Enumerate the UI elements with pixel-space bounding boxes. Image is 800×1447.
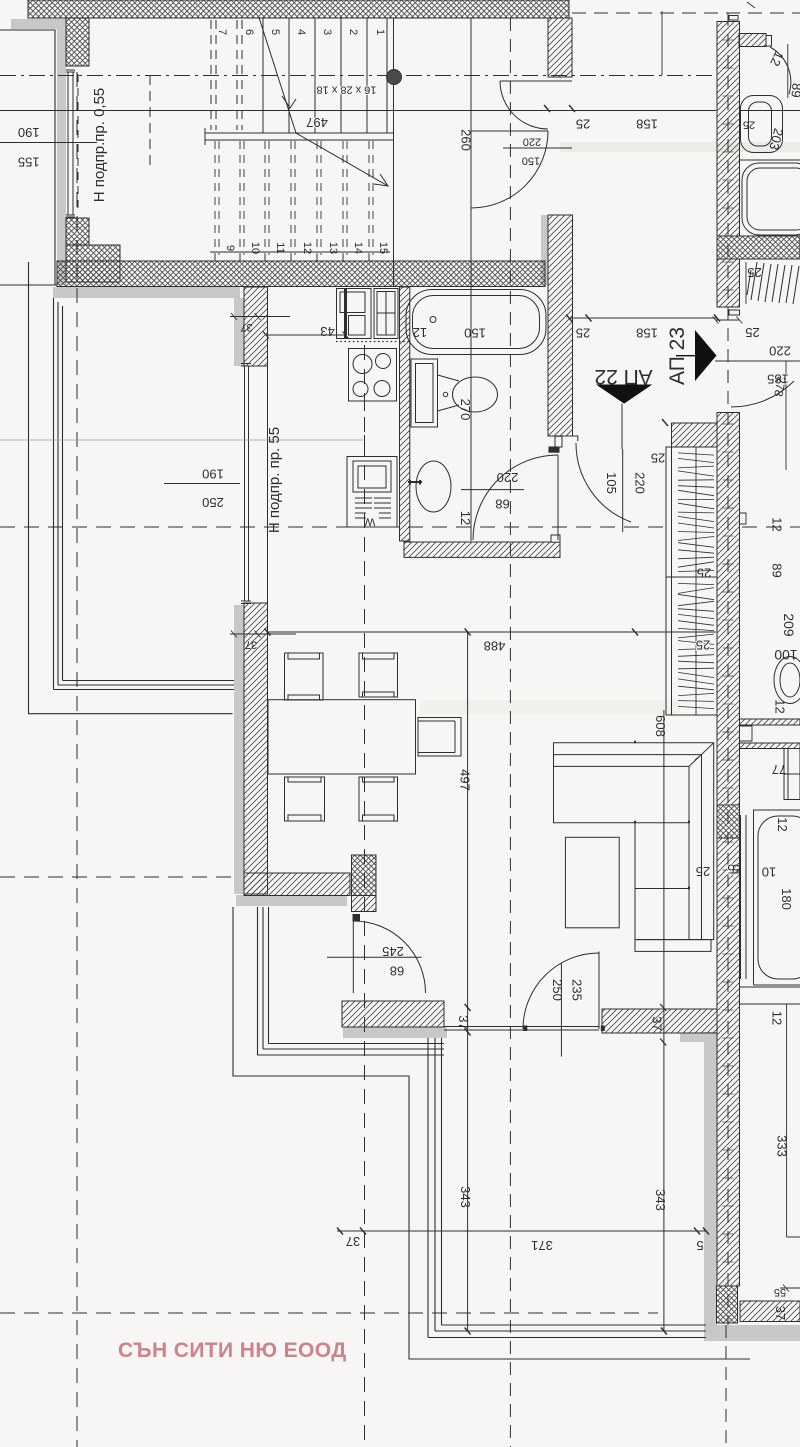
svg-text:497: 497 <box>458 769 473 791</box>
svg-text:10: 10 <box>762 865 776 880</box>
svg-text:220: 220 <box>633 472 648 494</box>
svg-text:1: 1 <box>374 29 386 35</box>
svg-text:55: 55 <box>774 1286 786 1298</box>
svg-text:260: 260 <box>459 129 474 151</box>
svg-text:АП 22: АП 22 <box>594 365 652 388</box>
svg-text:158: 158 <box>636 117 658 132</box>
svg-text:25: 25 <box>747 265 761 280</box>
svg-text:25: 25 <box>696 864 710 879</box>
svg-text:150: 150 <box>464 326 486 341</box>
svg-text:150: 150 <box>522 155 540 167</box>
svg-text:2: 2 <box>347 29 359 35</box>
svg-text:220: 220 <box>497 470 519 485</box>
svg-text:37: 37 <box>650 1016 665 1030</box>
svg-text:250: 250 <box>202 495 224 510</box>
svg-text:155: 155 <box>18 155 40 170</box>
svg-text:89: 89 <box>770 563 785 577</box>
svg-text:25: 25 <box>743 119 755 131</box>
svg-text:25: 25 <box>651 451 665 466</box>
svg-text:25: 25 <box>576 117 590 132</box>
svg-text:Н подпр.пр. 0,55: Н подпр.пр. 0,55 <box>91 88 108 203</box>
svg-text:497: 497 <box>306 115 328 130</box>
svg-text:5: 5 <box>696 1238 703 1253</box>
svg-text:16 х 28 х 18: 16 х 28 х 18 <box>317 84 377 96</box>
svg-text:12: 12 <box>770 1011 785 1025</box>
svg-text:25: 25 <box>696 638 710 653</box>
svg-text:25: 25 <box>745 325 759 340</box>
svg-text:37: 37 <box>346 1234 360 1249</box>
svg-text:5: 5 <box>732 862 739 877</box>
svg-text:220: 220 <box>769 344 791 359</box>
svg-text:12: 12 <box>458 511 473 525</box>
svg-text:14: 14 <box>352 242 364 254</box>
svg-text:3: 3 <box>321 29 333 35</box>
svg-text:220: 220 <box>523 136 541 148</box>
svg-text:235: 235 <box>570 979 585 1001</box>
svg-text:12: 12 <box>775 817 790 831</box>
svg-text:43: 43 <box>320 324 334 339</box>
svg-text:13: 13 <box>327 242 339 254</box>
svg-text:37: 37 <box>456 1015 471 1029</box>
svg-text:100: 100 <box>774 647 798 663</box>
svg-text:105: 105 <box>604 472 619 494</box>
svg-text:4: 4 <box>295 29 307 35</box>
svg-text:333: 333 <box>775 1135 790 1157</box>
svg-text:12: 12 <box>301 242 313 254</box>
svg-text:10: 10 <box>249 242 261 254</box>
svg-text:270: 270 <box>458 399 473 421</box>
svg-text:250: 250 <box>550 979 565 1001</box>
svg-text:180: 180 <box>779 888 794 910</box>
svg-text:12: 12 <box>770 517 785 531</box>
svg-text:12: 12 <box>413 325 427 340</box>
svg-text:СЪН СИТИ НЮ ЕООД: СЪН СИТИ НЮ ЕООД <box>118 1339 347 1362</box>
svg-text:Н подпр. пр. 55: Н подпр. пр. 55 <box>266 427 283 533</box>
svg-text:343: 343 <box>653 1189 668 1211</box>
svg-text:77: 77 <box>772 762 786 777</box>
svg-text:25: 25 <box>697 566 711 581</box>
svg-text:АП 23: АП 23 <box>666 327 689 385</box>
svg-text:7: 7 <box>216 29 228 35</box>
svg-text:W: W <box>364 516 375 528</box>
svg-text:6: 6 <box>243 29 255 35</box>
svg-text:37: 37 <box>245 639 257 651</box>
svg-text:37: 37 <box>240 321 252 333</box>
svg-text:5: 5 <box>269 29 281 35</box>
svg-text:25: 25 <box>576 326 590 341</box>
svg-text:15: 15 <box>377 242 389 254</box>
svg-text:12: 12 <box>773 699 788 713</box>
svg-text:158: 158 <box>636 326 658 341</box>
svg-text:209: 209 <box>781 613 797 637</box>
svg-text:11: 11 <box>274 242 286 253</box>
svg-text:488: 488 <box>484 639 506 654</box>
svg-text:343: 343 <box>458 1186 473 1208</box>
svg-text:68: 68 <box>390 964 404 979</box>
svg-text:9: 9 <box>224 245 236 251</box>
svg-text:190: 190 <box>202 467 224 482</box>
svg-text:68: 68 <box>495 497 509 512</box>
svg-text:371: 371 <box>531 1238 553 1253</box>
svg-text:245: 245 <box>382 944 404 959</box>
svg-text:608: 608 <box>653 715 668 737</box>
svg-text:37: 37 <box>773 1306 788 1320</box>
svg-text:190: 190 <box>18 125 40 140</box>
svg-text:89: 89 <box>788 83 800 99</box>
